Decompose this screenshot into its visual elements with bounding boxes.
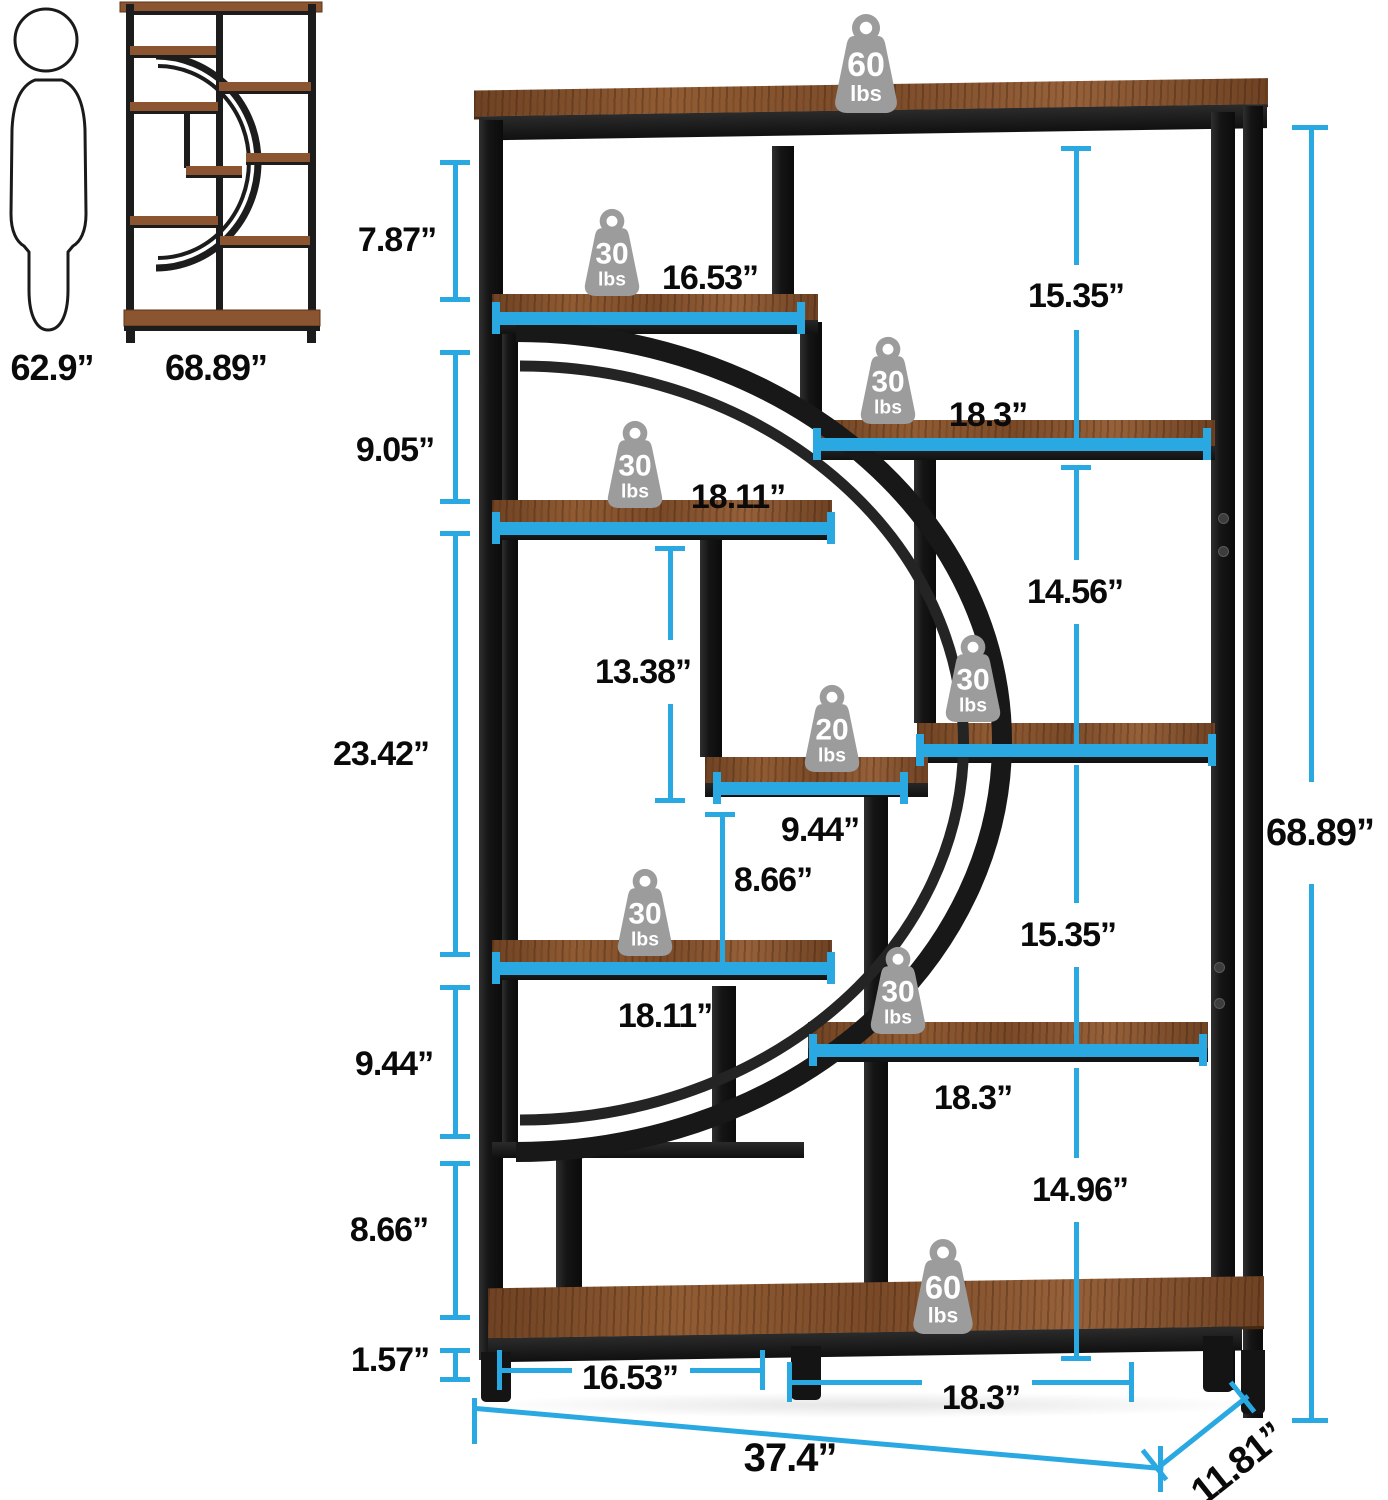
label-1.57: 1.57”: [351, 1343, 429, 1377]
dim-line-8.66-left: [453, 1163, 458, 1318]
svg-text:30: 30: [628, 897, 661, 930]
weight-badge-second-left: 30lbs: [591, 420, 679, 512]
bookshelf-dimension-diagram: 62.9” 68.89”: [0, 0, 1388, 1500]
dim-line-14.56-a: [1074, 467, 1079, 560]
dim-bar-18.11-lower: [495, 962, 830, 975]
svg-text:lbs: lbs: [818, 744, 846, 766]
dim-line-15.35-low-b: [1074, 967, 1079, 1044]
label-8.66-mid: 8.66”: [734, 863, 812, 897]
label-15.35-low: 15.35”: [1020, 918, 1116, 952]
dim-line-68.89-b: [1309, 884, 1314, 1420]
tick: [1061, 1356, 1091, 1361]
svg-text:lbs: lbs: [884, 1006, 912, 1028]
svg-text:lbs: lbs: [631, 928, 659, 950]
tick: [1061, 146, 1091, 151]
tick: [492, 952, 500, 984]
tick: [797, 302, 805, 334]
dim-line-18.3-bottom-a: [790, 1380, 922, 1385]
dim-bar-mid-right: [919, 744, 1211, 757]
label-15.35-top: 15.35”: [1028, 279, 1124, 313]
tick: [713, 772, 721, 804]
tick: [492, 302, 500, 334]
tick: [440, 350, 470, 355]
label-9.44-mid: 9.44”: [781, 813, 859, 847]
svg-text:30: 30: [956, 663, 989, 696]
weight-badge-top: 60lbs: [816, 13, 916, 117]
weight-badge-middle-right: 30lbs: [929, 634, 1017, 726]
tick: [809, 1034, 817, 1066]
tick: [440, 499, 470, 504]
tick: [497, 1350, 502, 1390]
dim-line-13.38-b: [668, 704, 673, 800]
tick: [787, 1362, 792, 1402]
dim-bar-18.11-upper: [495, 522, 830, 535]
tick: [440, 952, 470, 957]
dim-line-18.3-bottom-b: [1032, 1380, 1132, 1385]
tick: [1292, 1418, 1328, 1423]
tick: [1292, 125, 1328, 130]
label-9.44-left: 9.44”: [355, 1047, 433, 1081]
tick: [440, 1348, 470, 1353]
weight-badge-lower-left: 30lbs: [601, 868, 689, 960]
dim-line-15.35-top-b: [1074, 330, 1079, 438]
label-23.42: 23.42”: [333, 737, 429, 771]
label-18.3-upper: 18.3”: [949, 398, 1027, 432]
label-overall-width: 37.4”: [744, 1438, 837, 1478]
svg-text:30: 30: [871, 365, 904, 398]
label-18.3-lower: 18.3”: [934, 1081, 1012, 1115]
weight-badge-lower-right: 30lbs: [854, 946, 942, 1038]
label-18.3-bottom: 18.3”: [942, 1381, 1020, 1415]
dim-line-9.44-left: [453, 987, 458, 1137]
dim-line-15.35-low-a: [1074, 765, 1079, 903]
tick: [440, 1315, 470, 1320]
dim-bar-9.44: [716, 782, 903, 795]
svg-text:lbs: lbs: [874, 396, 902, 418]
dim-bar-16.53: [495, 312, 800, 325]
svg-text:lbs: lbs: [850, 81, 882, 106]
tick: [440, 1377, 470, 1382]
dim-line-68.89-a: [1309, 127, 1314, 782]
weight-badge-upper-left: 30lbs: [568, 208, 656, 300]
svg-text:lbs: lbs: [959, 694, 987, 716]
weight-badge-upper-right: 30lbs: [844, 336, 932, 428]
svg-text:30: 30: [881, 975, 914, 1008]
dim-line-9.05: [453, 352, 458, 502]
dim-line-14.96-b: [1074, 1222, 1079, 1358]
tick: [760, 1350, 765, 1390]
tick: [1199, 1034, 1207, 1066]
tick: [655, 546, 685, 551]
tick: [827, 512, 835, 544]
tick: [705, 812, 735, 817]
svg-text:lbs: lbs: [928, 1304, 959, 1327]
svg-text:30: 30: [618, 449, 651, 482]
tick: [827, 952, 835, 984]
dim-line-14.56-b: [1074, 624, 1079, 744]
tick: [440, 985, 470, 990]
tick: [900, 772, 908, 804]
tick: [916, 734, 924, 766]
tick: [440, 1134, 470, 1139]
tick: [492, 512, 500, 544]
tick: [440, 297, 470, 302]
svg-text:60: 60: [925, 1268, 961, 1305]
dim-bar-18.3-lower: [812, 1044, 1202, 1057]
dim-line-16.53-bottom-b: [690, 1368, 763, 1373]
svg-text:lbs: lbs: [598, 268, 626, 290]
label-9.05: 9.05”: [356, 433, 434, 467]
tick: [655, 798, 685, 803]
svg-text:60: 60: [847, 46, 885, 84]
label-8.66-left: 8.66”: [350, 1213, 428, 1247]
dim-line-14.96-a: [1074, 1068, 1079, 1158]
weight-badge-bottom: 60lbs: [895, 1238, 991, 1338]
svg-text:30: 30: [595, 237, 628, 270]
dim-line-23.42: [453, 533, 458, 955]
dim-line-7.87: [453, 162, 458, 300]
tick: [1208, 734, 1216, 766]
svg-text:20: 20: [815, 713, 848, 746]
label-overall-height: 68.89”: [1266, 814, 1374, 852]
dim-line-13.38-a: [668, 548, 673, 640]
tick: [440, 1161, 470, 1166]
tick: [472, 1398, 477, 1444]
tick: [1129, 1362, 1134, 1402]
label-13.38: 13.38”: [595, 655, 691, 689]
tick: [813, 428, 821, 460]
dim-line-8.66-mid: [720, 814, 725, 962]
label-14.56: 14.56”: [1027, 575, 1123, 609]
weight-badge-center-small: 20lbs: [788, 684, 876, 776]
dim-bar-18.3-upper: [816, 438, 1206, 451]
tick: [440, 160, 470, 165]
tick: [440, 531, 470, 536]
label-16.53-bottom: 16.53”: [582, 1361, 678, 1395]
label-18.11-upper: 18.11”: [691, 480, 785, 514]
dim-line-15.35-top-a: [1074, 148, 1079, 265]
dim-line-1.57: [453, 1350, 458, 1380]
dim-line-16.53-bottom-a: [500, 1368, 572, 1373]
tick: [1203, 428, 1211, 460]
svg-text:lbs: lbs: [621, 480, 649, 502]
label-7.87: 7.87”: [358, 223, 436, 257]
tick: [1061, 465, 1091, 470]
label-16.53-upper: 16.53”: [662, 261, 758, 295]
label-18.11-lower: 18.11”: [618, 999, 712, 1033]
label-14.96: 14.96”: [1032, 1173, 1128, 1207]
